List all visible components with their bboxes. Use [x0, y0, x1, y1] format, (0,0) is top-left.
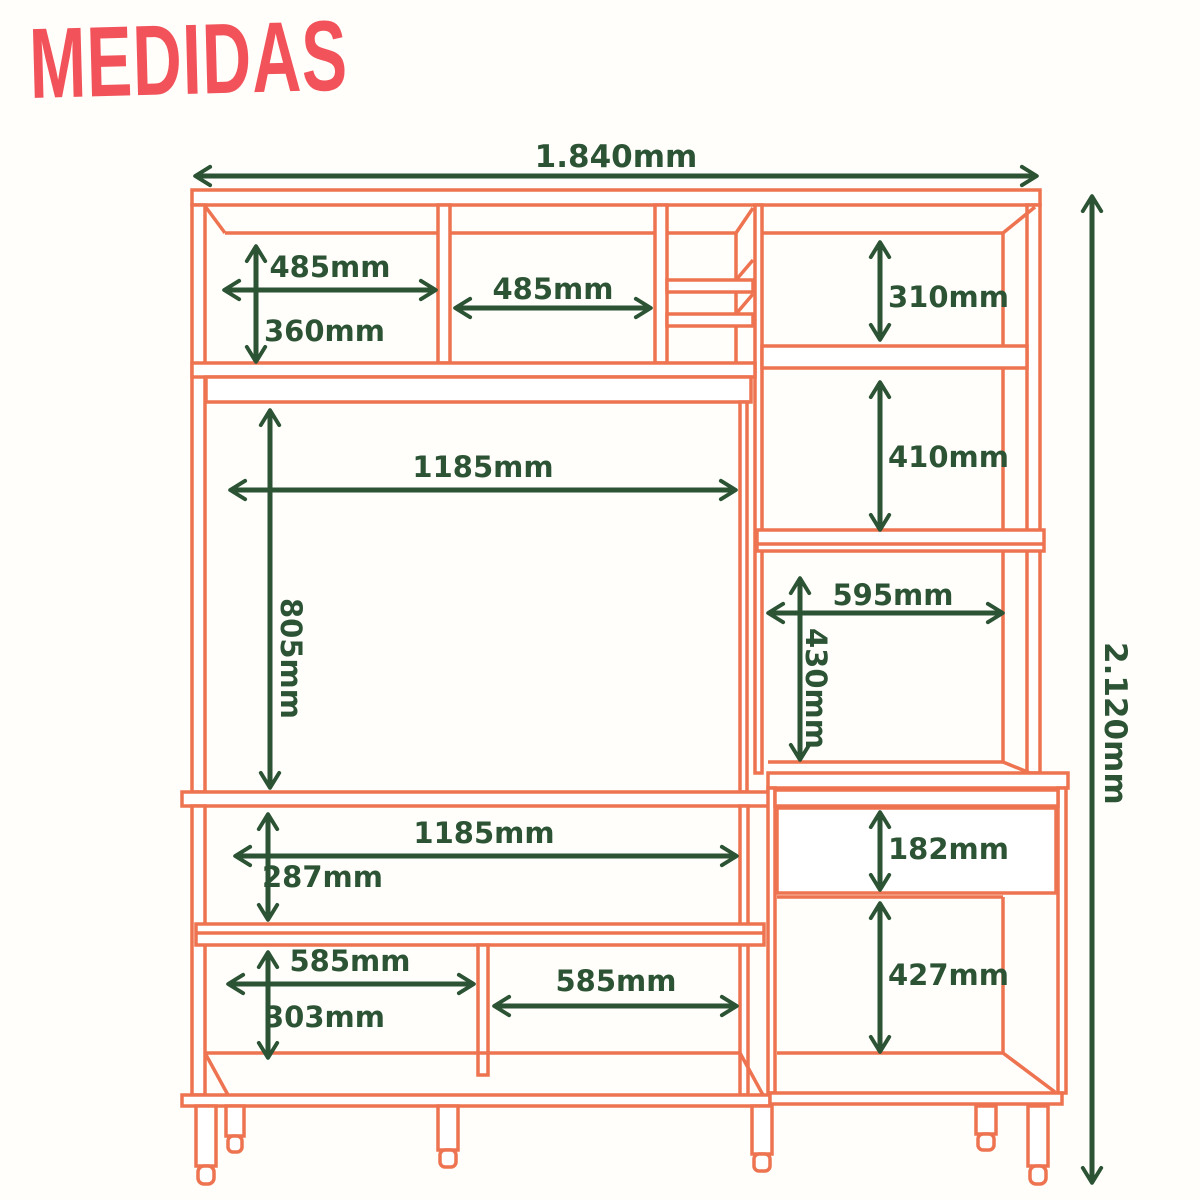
leg-back-right	[976, 1106, 996, 1134]
leg-junction-foot	[754, 1154, 770, 1171]
base-top-board	[182, 792, 770, 806]
leg-back-left	[226, 1106, 244, 1136]
upper-bottom-board	[192, 363, 755, 377]
dim-label-overall-width: 1.840mm	[535, 140, 698, 174]
leg-front-right-foot	[1030, 1166, 1046, 1184]
right-side-panel	[1027, 205, 1040, 773]
top-board	[192, 190, 1040, 205]
unit-top-board	[768, 773, 1068, 788]
valance-board	[206, 377, 751, 402]
leg-back-left-foot	[228, 1136, 242, 1152]
upper-divider-2	[655, 205, 667, 363]
niche-shelf-1	[667, 280, 753, 292]
leg-center-foot	[440, 1150, 456, 1167]
dim-label-overall-height: 2.120mm	[1098, 642, 1132, 805]
dim-label-top-left-height: 360mm	[264, 316, 385, 348]
leg-center	[438, 1106, 458, 1150]
upper-divider-1	[438, 205, 450, 363]
dim-label-tv-width: 1185mm	[412, 452, 553, 484]
leg-front-right	[1028, 1106, 1048, 1166]
right-shelf-1	[762, 346, 1027, 368]
measurements-page: MEDIDAS	[0, 0, 1200, 1200]
base-bottom-band	[182, 1095, 770, 1106]
unit-bottom-band	[770, 1093, 1062, 1104]
dim-label-drawer-height: 182mm	[888, 834, 1009, 866]
persp-niche-top	[736, 208, 753, 233]
persp-base-floor-left	[205, 1053, 228, 1095]
base-left-panel	[192, 806, 205, 1095]
dim-label-base-center-width: 585mm	[556, 966, 677, 998]
left-side-panel	[192, 205, 205, 792]
persp-unit-floor	[1003, 1053, 1055, 1092]
dim-label-base-left-height: 303mm	[264, 1002, 385, 1034]
furniture-diagram	[0, 0, 1200, 1200]
unit-top-rail	[775, 790, 1058, 806]
persp-niche-shelf-2	[736, 294, 753, 314]
persp-top-left	[205, 206, 225, 233]
dim-label-base-left-width: 585mm	[290, 946, 411, 978]
niche-shelf-2	[667, 314, 753, 326]
dim-label-base-shelf-height: 287mm	[262, 862, 383, 894]
dim-label-right-lower-height: 430mm	[799, 628, 831, 749]
right-column-left-panel	[755, 205, 762, 773]
cabinet-legs	[196, 1106, 1048, 1184]
leg-junction	[752, 1106, 772, 1154]
dim-label-top-right-height: 310mm	[888, 282, 1009, 314]
persp-niche-shelf-1	[736, 260, 753, 280]
leg-front-left-foot	[198, 1166, 214, 1184]
unit-left-panel	[768, 788, 775, 1093]
dim-label-top-left-width: 485mm	[270, 252, 391, 284]
dim-label-right-lower-width: 595mm	[833, 580, 954, 612]
dim-label-tv-height: 805mm	[274, 598, 306, 719]
dim-label-top-center-width: 485mm	[493, 274, 614, 306]
tv-niche-right-wall	[740, 402, 747, 792]
dim-label-right-shelf-height: 410mm	[888, 442, 1009, 474]
leg-front-left	[196, 1106, 216, 1166]
dim-label-base-right-height: 427mm	[888, 960, 1009, 992]
base-divider	[478, 945, 488, 1075]
dim-label-base-shelf-width: 1185mm	[413, 818, 554, 850]
right-shelf-2	[757, 530, 1044, 551]
leg-back-right-foot	[978, 1134, 994, 1150]
unit-right-panel	[1058, 788, 1066, 1093]
base-right-panel	[740, 806, 748, 1095]
